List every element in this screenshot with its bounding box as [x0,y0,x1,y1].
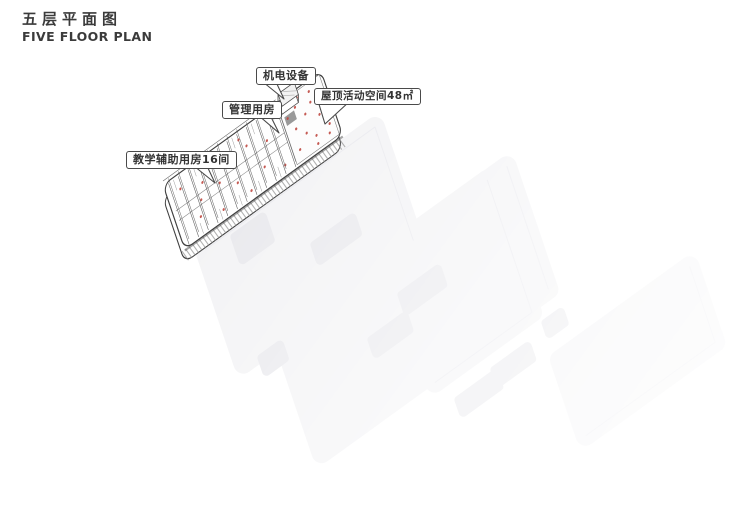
title-block: 五层平面图 FIVE FLOOR PLAN [22,10,152,44]
label-management-room-text: 管理用房 [229,103,275,116]
axonometric-drawing [0,0,750,529]
page-title: 五层平面图 [22,10,152,28]
label-mech-equipment: 机电设备 [256,67,316,85]
floor-plan-figure: 五层平面图 FIVE FLOOR PLAN [0,0,750,529]
label-roof-activity-space: 屋顶活动空间48㎡ [314,88,421,105]
page-subtitle: FIVE FLOOR PLAN [22,29,152,44]
label-mech-equipment-text: 机电设备 [263,69,309,82]
label-management-room: 管理用房 [222,101,282,119]
label-roof-activity-space-text: 屋顶活动空间48㎡ [321,90,414,102]
label-teaching-aux-rooms-text: 教学辅助用房16间 [133,153,230,166]
label-teaching-aux-rooms: 教学辅助用房16间 [126,151,237,169]
